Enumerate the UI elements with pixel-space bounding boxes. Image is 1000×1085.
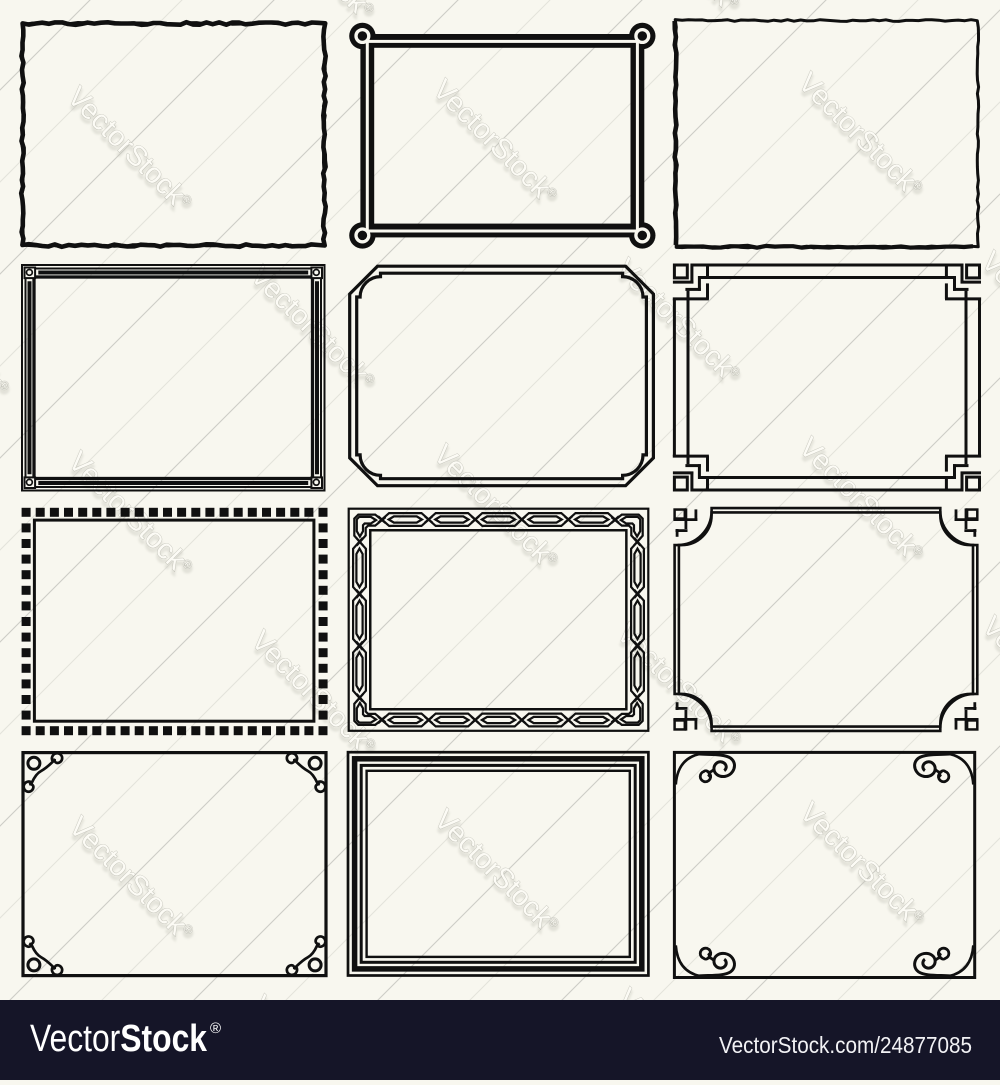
svg-text:VectorStock: VectorStock xyxy=(30,1018,208,1060)
svg-text:®: ® xyxy=(210,1020,221,1037)
svg-text:VectorStock.com/24877085: VectorStock.com/24877085 xyxy=(719,1032,972,1058)
